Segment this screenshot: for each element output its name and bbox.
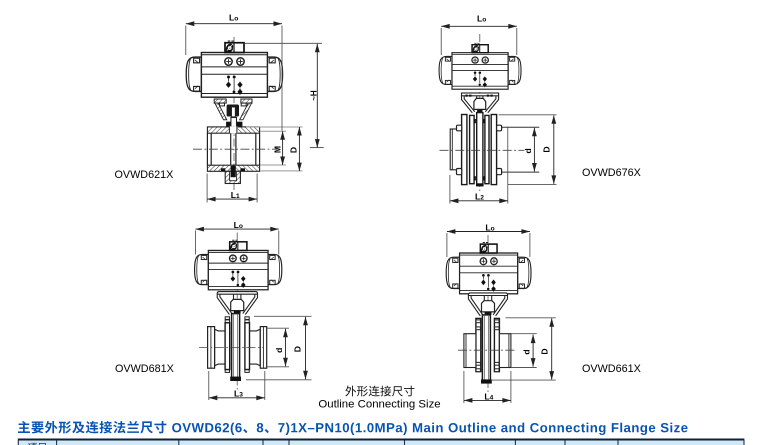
svg-text:OVWD681X: OVWD681X <box>115 363 174 375</box>
svg-text:D: D <box>542 146 552 152</box>
svg-text:d: d <box>523 148 533 153</box>
svg-text:OVWD621X: OVWD621X <box>115 169 174 181</box>
svg-text:D: D <box>293 346 303 352</box>
svg-text:OVWD676X: OVWD676X <box>582 167 641 179</box>
svg-text:OVWD661X: OVWD661X <box>582 363 641 375</box>
svg-text:d: d <box>274 348 284 353</box>
svg-text:M: M <box>273 146 283 153</box>
svg-text:D: D <box>540 348 550 354</box>
svg-text:D: D <box>288 147 298 153</box>
svg-text:d: d <box>521 349 531 354</box>
svg-text:~H: ~H <box>309 90 318 101</box>
svg-text:Outline Connecting Size: Outline Connecting Size <box>318 398 440 410</box>
